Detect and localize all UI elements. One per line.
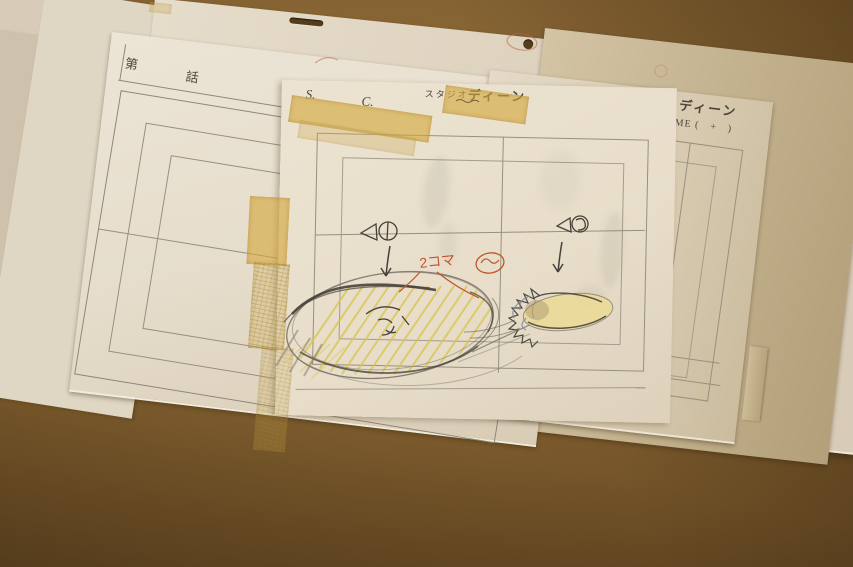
timing-note-text: 2コマ xyxy=(419,251,456,271)
tape-scribble xyxy=(456,100,479,103)
red-pencil-marks xyxy=(315,32,667,77)
eraser-ghost-smudges xyxy=(418,150,626,310)
eye-symbol-right xyxy=(557,216,588,232)
yellow-pencil-hatching xyxy=(290,286,532,374)
orange-pencil-notes: 2コマ xyxy=(399,251,506,298)
eye-symbol-left xyxy=(361,222,397,240)
orange-circled-squiggle xyxy=(481,259,499,263)
down-arrow-right xyxy=(553,242,563,272)
orange-leader-line-left xyxy=(399,272,420,292)
sketch-overlay: 2コマ xyxy=(0,0,853,567)
orange-circled-note xyxy=(474,251,505,276)
down-arrow-left xyxy=(381,246,391,276)
photo-of-animation-sheets: 第 話 S. C. スタジオ ディーン TIME ( + ) S. C. スタジ… xyxy=(0,0,853,567)
